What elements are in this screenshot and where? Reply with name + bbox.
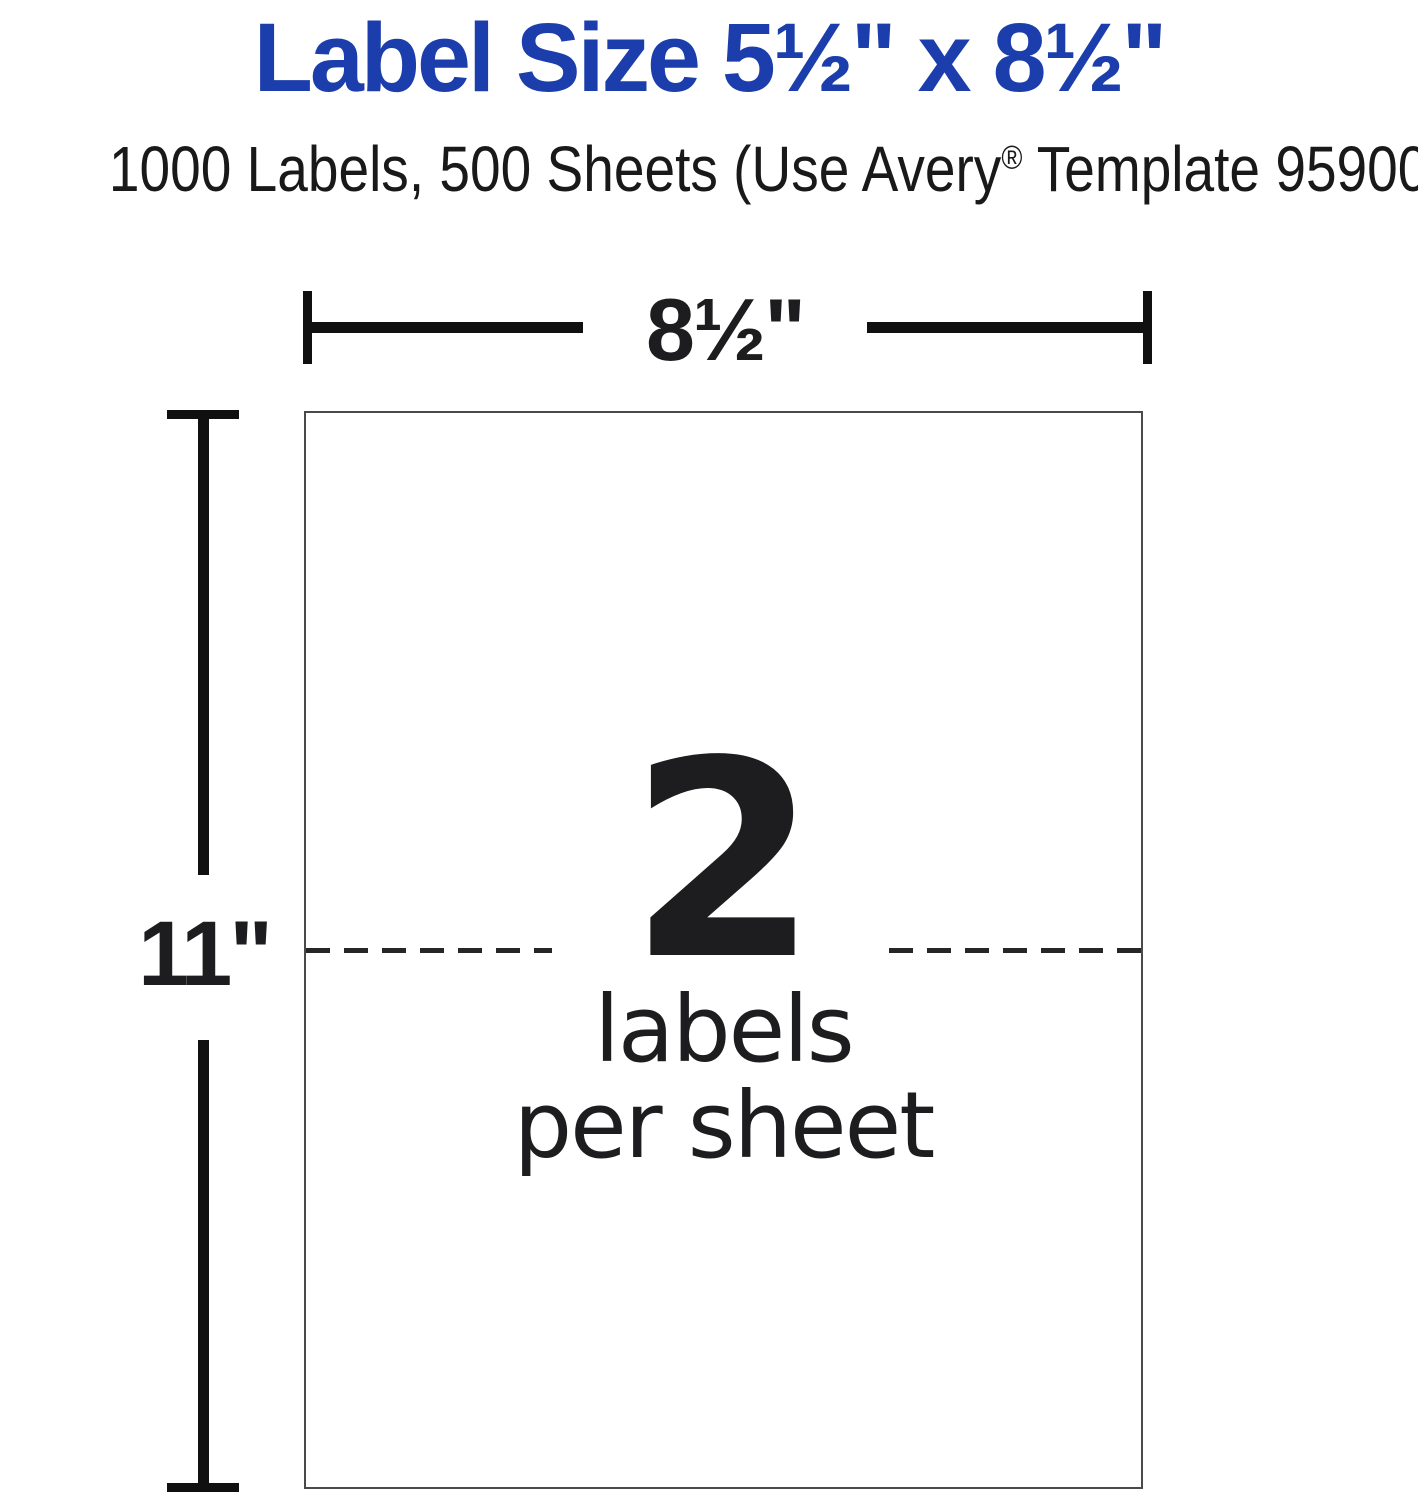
labels-caption-line1: labels — [304, 984, 1143, 1076]
registered-trademark-symbol: ® — [1001, 140, 1022, 177]
height-dimension-tick-bottom — [167, 1483, 239, 1492]
subtitle-post: Template 95900) — [1022, 133, 1418, 205]
subtitle-pre: 1000 Labels, 500 Sheets (Use Avery — [109, 133, 1001, 205]
labels-caption-line2: per sheet — [304, 1080, 1143, 1172]
width-dimension-line-left — [307, 322, 583, 333]
page-title: Label Size 5½" x 8½" — [0, 2, 1418, 114]
width-dimension-tick-right — [1143, 291, 1152, 364]
labels-per-sheet-count: 2 — [304, 742, 1143, 982]
page-subtitle-text: 1000 Labels, 500 Sheets (Use Avery® Temp… — [109, 132, 1418, 206]
width-dimension-label: 8½" — [583, 282, 867, 378]
height-dimension-line-lower — [198, 1040, 209, 1488]
page-subtitle: 1000 Labels, 500 Sheets (Use Avery® Temp… — [0, 132, 1418, 206]
width-dimension-line-right — [867, 322, 1148, 333]
height-dimension-label: 11" — [118, 878, 290, 1030]
height-dimension-line-upper — [198, 414, 209, 875]
